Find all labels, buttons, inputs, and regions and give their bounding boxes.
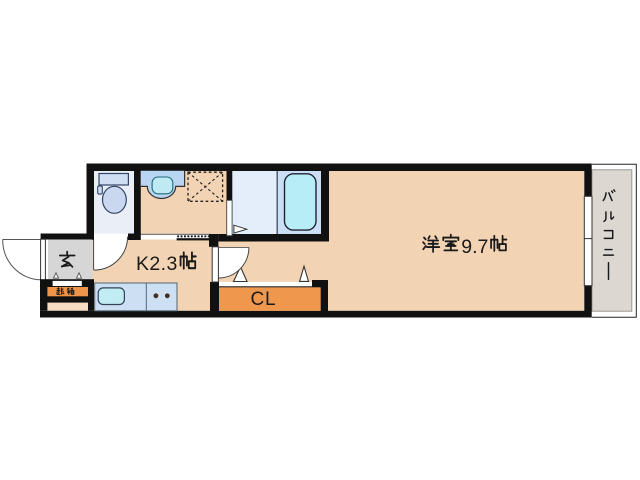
svg-text:K2.3: K2.3 xyxy=(136,253,178,275)
svg-text:CL: CL xyxy=(251,289,277,310)
svg-text:9.7: 9.7 xyxy=(461,236,488,258)
